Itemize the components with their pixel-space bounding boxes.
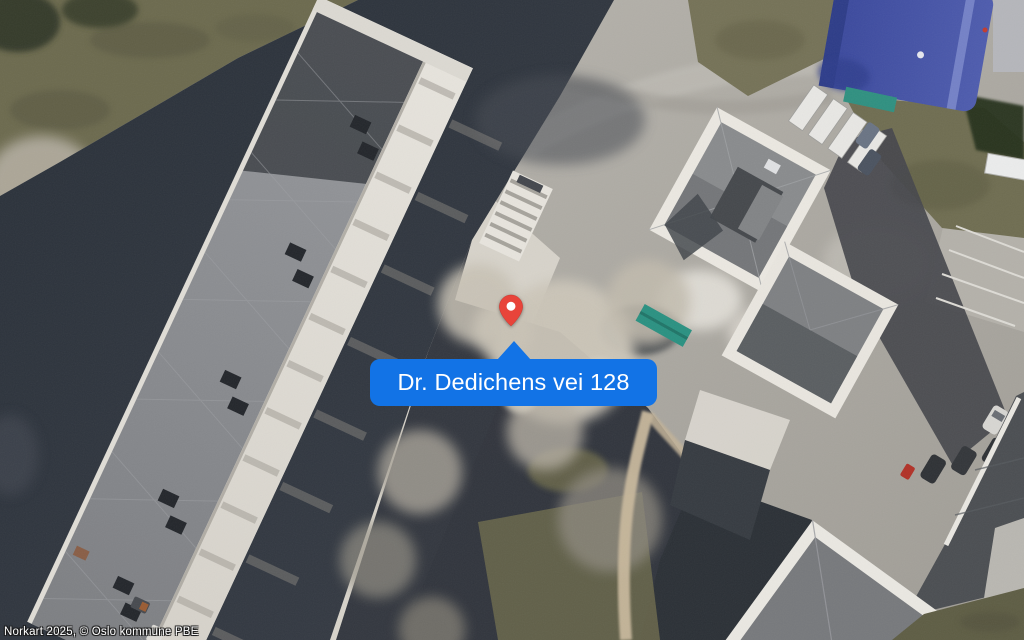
map-pin[interactable] [498,294,524,327]
map-view: Dr. Dedichens vei 128 Norkart 2025, © Os… [0,0,1024,640]
attribution-text: Norkart 2025, © Oslo kommune PBE [4,626,198,638]
address-label-text: Dr. Dedichens vei 128 [397,359,629,406]
map-attribution: Norkart 2025, © Oslo kommune PBE [4,626,198,638]
location-pin-icon [498,294,524,327]
label-pointer [497,341,531,360]
address-label[interactable]: Dr. Dedichens vei 128 [370,359,657,406]
